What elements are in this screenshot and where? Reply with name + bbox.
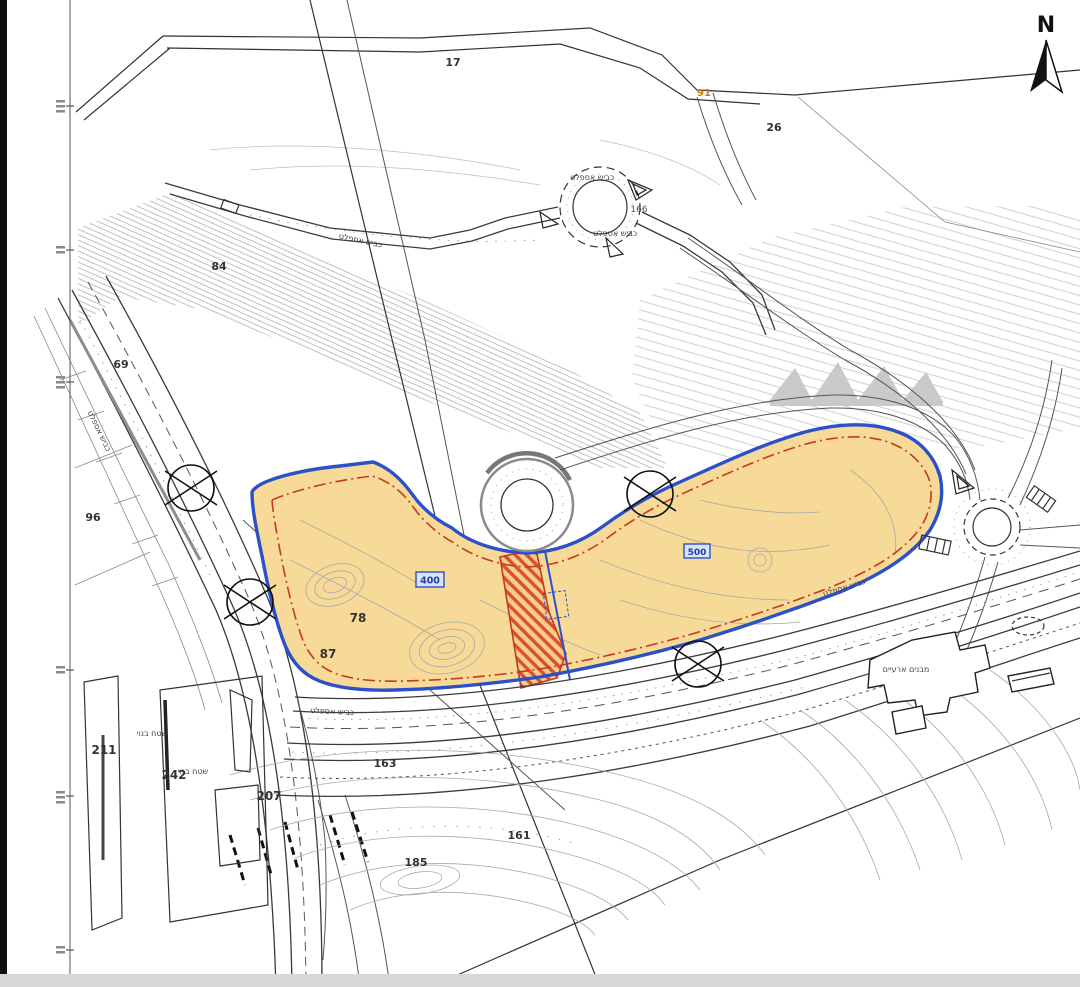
survey-marker: [672, 641, 724, 687]
parcel-label-69: 69: [113, 358, 128, 371]
parcel-label-163: 163: [374, 757, 397, 770]
road-label-asphalt: כביש אספלט: [86, 409, 113, 453]
parcel-label-84: 84: [211, 260, 227, 273]
parcel-label-17: 17: [445, 56, 460, 69]
buildings-label: מבנים ארעיים: [883, 665, 930, 674]
scan-edge-left: [0, 0, 7, 975]
parcel-label-185: 185: [405, 856, 428, 869]
built-area-label: שטח בנוי: [137, 729, 168, 738]
scan-edge-bottom: [0, 974, 1080, 987]
buildings-temporary: [868, 617, 1054, 734]
parcel-label-87: 87: [320, 647, 337, 661]
parcel-label-211: 211: [91, 743, 116, 757]
parcel-label-96: 96: [85, 511, 101, 524]
built-area-label: שטח בנוי: [178, 767, 209, 776]
road-label-asphalt: כביש אספלט: [570, 173, 614, 182]
svg-text:400: 400: [420, 576, 440, 587]
parcel-label-91: 91: [697, 88, 711, 99]
parcel-label-207: 207: [256, 789, 281, 803]
contour-slope-northeast: [632, 206, 1080, 460]
north-arrow-icon: N: [1030, 13, 1062, 92]
parcel-label-26: 26: [766, 121, 782, 134]
coordinate-frame: [56, 0, 74, 974]
roundabout-central: [481, 453, 573, 551]
site-plan-canvas: 17 91 26 84 69 96 78 87 166 163 161 185 …: [0, 0, 1080, 987]
road-label-asphalt: כביש אספלט: [310, 706, 355, 717]
crosswalk-symbol: [1026, 486, 1055, 512]
parcel-label-78: 78: [350, 611, 367, 625]
plot-tag-400: 400: [416, 572, 444, 587]
parcels-bottom-left: [84, 676, 268, 930]
north-label: N: [1037, 13, 1055, 38]
culvert-symbol: [221, 200, 239, 214]
plot-tag-500: 500: [684, 544, 710, 558]
site-plan-map: 17 91 26 84 69 96 78 87 166 163 161 185 …: [0, 0, 1080, 987]
parcel-label-161: 161: [508, 829, 531, 842]
svg-text:500: 500: [688, 548, 707, 558]
road-label-asphalt: כביש אספלט: [338, 232, 383, 250]
parcel-label-166: 166: [630, 205, 647, 215]
road-label-asphalt: כביש אספלט: [593, 229, 637, 238]
